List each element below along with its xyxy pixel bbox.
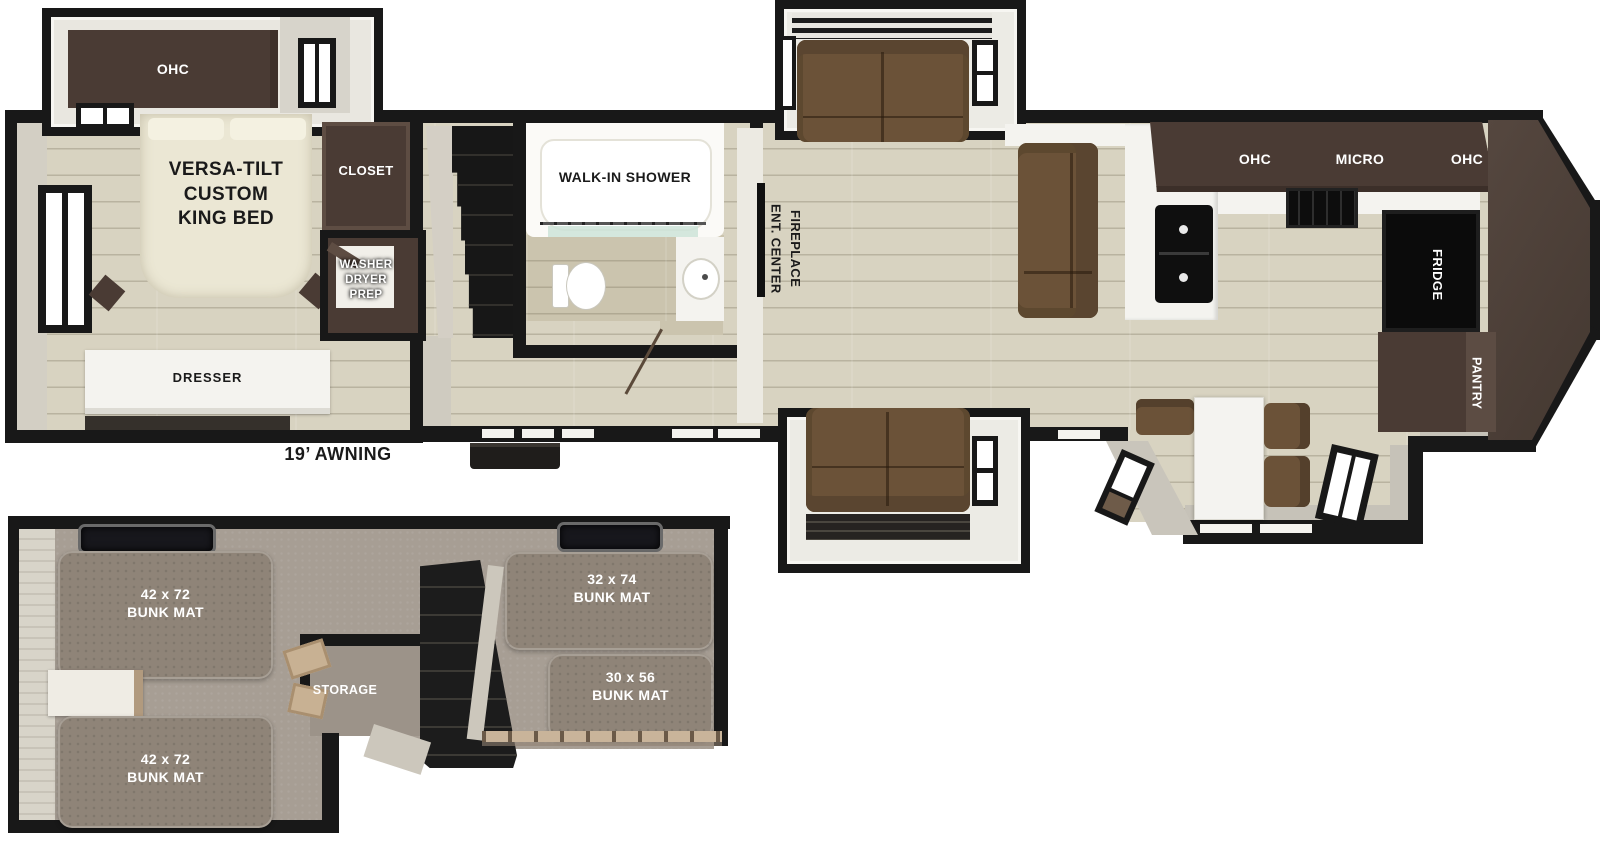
sofa-bottom (806, 408, 970, 512)
pantry-label: PANTRY (1468, 346, 1490, 420)
left-wall (5, 110, 17, 443)
storage-label: STORAGE (302, 682, 388, 698)
skylight (557, 522, 663, 552)
fridge-label: FRIDGE (1428, 240, 1450, 310)
awning-label: 19’ AWNING (268, 443, 408, 466)
bunk-mat-42-bottom-label: 42 x 72 BUNK MAT (58, 750, 273, 786)
dinette-window-slot (1200, 524, 1252, 533)
bath-door-opening (660, 321, 723, 335)
rv-floorplan: OHC VERSA-TILT CUSTOM KING BED CLOSET WA… (0, 0, 1600, 848)
dinette-chair (1264, 403, 1310, 449)
bedroom-rug (85, 416, 290, 430)
dinette-window-slot (1260, 524, 1312, 533)
bedroom-side-window (38, 185, 92, 333)
bedroom-bottom-wall (5, 430, 423, 443)
bedroom-top-window (76, 103, 134, 129)
bath-sink (682, 258, 720, 300)
bunk-mat-30-label: 30 x 56 BUNK MAT (548, 668, 713, 704)
bed-pillow (148, 118, 224, 140)
kitchen-micro-label: MICRO (1315, 150, 1405, 168)
washer-dryer-label: WASHER DRYER PREP (322, 258, 410, 303)
bedroom-ohc-label: OHC (128, 60, 218, 78)
closet-label: CLOSET (322, 163, 410, 180)
living-window (1058, 430, 1100, 439)
entry-door-glass (482, 429, 514, 438)
slide-bottom-rug (806, 514, 970, 540)
dinette-chair (1264, 456, 1310, 507)
loft-nightstand (48, 670, 143, 716)
entry-step (470, 443, 560, 469)
shower-curtain-track (540, 222, 706, 225)
loft-step-wall (322, 733, 339, 830)
skylight (78, 524, 216, 554)
bunk-mat-32-label: 32 x 74 BUNK MAT (512, 570, 712, 606)
front-cap (1488, 120, 1592, 442)
toilet-bowl (566, 262, 606, 310)
hall-window-mullion (713, 429, 718, 438)
dresser-label: DRESSER (85, 370, 330, 387)
dinette-table (1194, 397, 1264, 520)
bath-faucet (702, 274, 708, 280)
hall-left-wall-face (423, 336, 451, 428)
fireplace-bar (757, 183, 765, 297)
kitchen-ohc-left-label: OHC (1210, 150, 1300, 168)
loft-right-wall (714, 516, 728, 746)
slide-window-left (779, 36, 796, 110)
loft-left-wall (8, 516, 19, 833)
sofa-top (797, 40, 969, 142)
king-bed-label: VERSA-TILT CUSTOM KING BED (136, 158, 316, 232)
slide-bottom-window (972, 436, 998, 506)
sofa-side (1018, 143, 1098, 318)
ent-center-label: ENT. CENTER FIREPLACE (766, 176, 806, 321)
kitchen-sink (1155, 205, 1213, 303)
entry-door-glass (522, 429, 554, 438)
shower-label: WALK-IN SHOWER (526, 168, 724, 186)
bedroom-slide-window (298, 38, 336, 108)
top-wall-kitchen (1002, 110, 1543, 123)
bed-pillow (230, 118, 306, 140)
dinette-bench (1136, 399, 1194, 435)
bunk-mat-42-top-label: 42 x 72 BUNK MAT (58, 585, 273, 621)
slide-roof-lines (792, 13, 992, 39)
shower-glass (548, 226, 698, 237)
dinette-inner-wall-right (1390, 445, 1408, 522)
stove (1286, 188, 1358, 228)
loft-railing (482, 731, 722, 742)
slide-window-right (972, 40, 998, 106)
entry-door-glass (562, 429, 594, 438)
